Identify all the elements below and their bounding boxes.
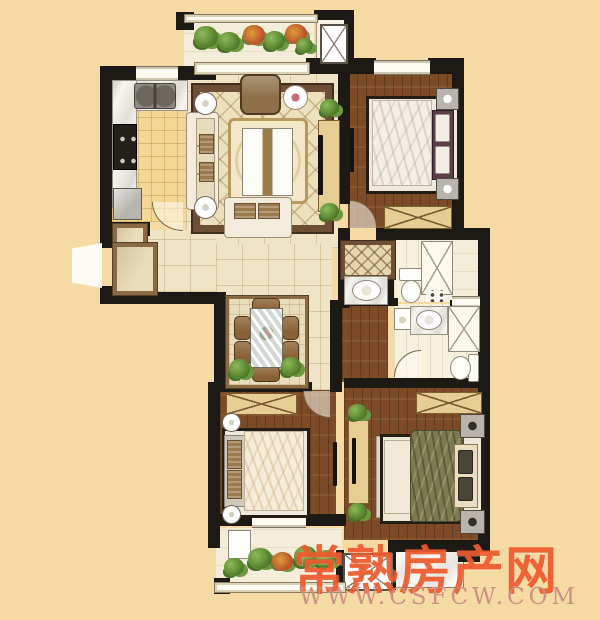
tv-master — [352, 438, 356, 484]
armchair — [240, 74, 281, 115]
bed3-duvet — [244, 431, 304, 511]
wardrobe3 — [226, 393, 297, 415]
shower2 — [448, 306, 480, 352]
master-wardrobe — [416, 392, 482, 414]
wall — [330, 300, 342, 392]
vanity2-sink — [416, 310, 442, 330]
plant-icon — [320, 203, 339, 220]
master-pillow — [458, 450, 473, 474]
tv-living — [318, 135, 323, 195]
side-table-lamp-icon — [194, 92, 217, 115]
plant-icon — [224, 558, 244, 576]
throw-pillow — [199, 134, 214, 154]
plant-icon — [296, 38, 313, 53]
throw-pillow — [234, 203, 256, 219]
fridge — [113, 188, 142, 220]
dining-table — [250, 308, 283, 368]
flue-window-icon — [320, 24, 348, 64]
plant-icon — [229, 359, 250, 379]
throw-pillow — [199, 162, 214, 182]
flower-pot-icon — [272, 552, 293, 571]
plant-icon — [218, 32, 240, 51]
hallway-mat — [341, 241, 395, 279]
tv-bedroom2 — [350, 128, 354, 172]
side-table-lamp-icon — [222, 505, 241, 524]
dining-chair — [234, 316, 251, 340]
top-balcony-railing — [184, 14, 318, 23]
round-side-table — [283, 85, 308, 110]
bedroom2-window — [374, 60, 430, 75]
flower-pot-icon — [243, 25, 265, 45]
plant-icon — [348, 404, 367, 420]
throw-pillow — [258, 203, 280, 219]
watermark-site-url: WWW.CSFCW.COM — [299, 584, 589, 610]
floor-drain-icon — [426, 290, 444, 302]
entry-door-swing — [72, 243, 102, 288]
kitchen-window — [136, 66, 178, 81]
tv-bedroom3 — [333, 442, 337, 486]
nightstand — [460, 414, 485, 438]
master-pillow — [458, 477, 473, 501]
plant-icon — [264, 31, 285, 50]
kitchen-door-arc — [152, 202, 183, 231]
bed2-duvet — [372, 100, 432, 186]
wall — [304, 514, 346, 526]
plant-icon — [281, 357, 301, 376]
washing-machine — [394, 308, 411, 330]
corridor-floor — [342, 304, 388, 382]
bed3-pillow — [227, 440, 242, 469]
coffee-table — [242, 128, 293, 196]
plant-icon — [348, 503, 367, 520]
plant-icon — [248, 548, 272, 569]
bed3-pillow — [227, 470, 242, 499]
floor-plan-image: 常熟房产网 WWW.CSFCW.COM — [0, 0, 600, 620]
nightstand — [436, 88, 459, 110]
stove-icon — [113, 124, 137, 170]
bed2-pillow — [435, 146, 450, 174]
dining-chair — [252, 366, 280, 382]
shower1 — [421, 241, 453, 295]
entry-mat — [113, 243, 157, 295]
wall — [100, 66, 136, 80]
toilet1-bowl — [401, 280, 421, 303]
wall — [100, 66, 112, 236]
nightstand — [460, 510, 485, 534]
bed2-pillow — [435, 114, 450, 142]
nightstand — [436, 178, 459, 200]
wardrobe2 — [384, 206, 452, 229]
toilet2-bowl — [450, 356, 471, 380]
plant-icon — [320, 99, 339, 116]
side-table-lamp-icon — [194, 196, 217, 219]
plant-icon — [194, 26, 218, 48]
vanity1-sink — [352, 280, 381, 301]
side-table-lamp-icon — [222, 413, 241, 432]
kitchen-sink — [134, 83, 176, 109]
wall — [214, 296, 226, 390]
dining-chair — [282, 316, 299, 340]
